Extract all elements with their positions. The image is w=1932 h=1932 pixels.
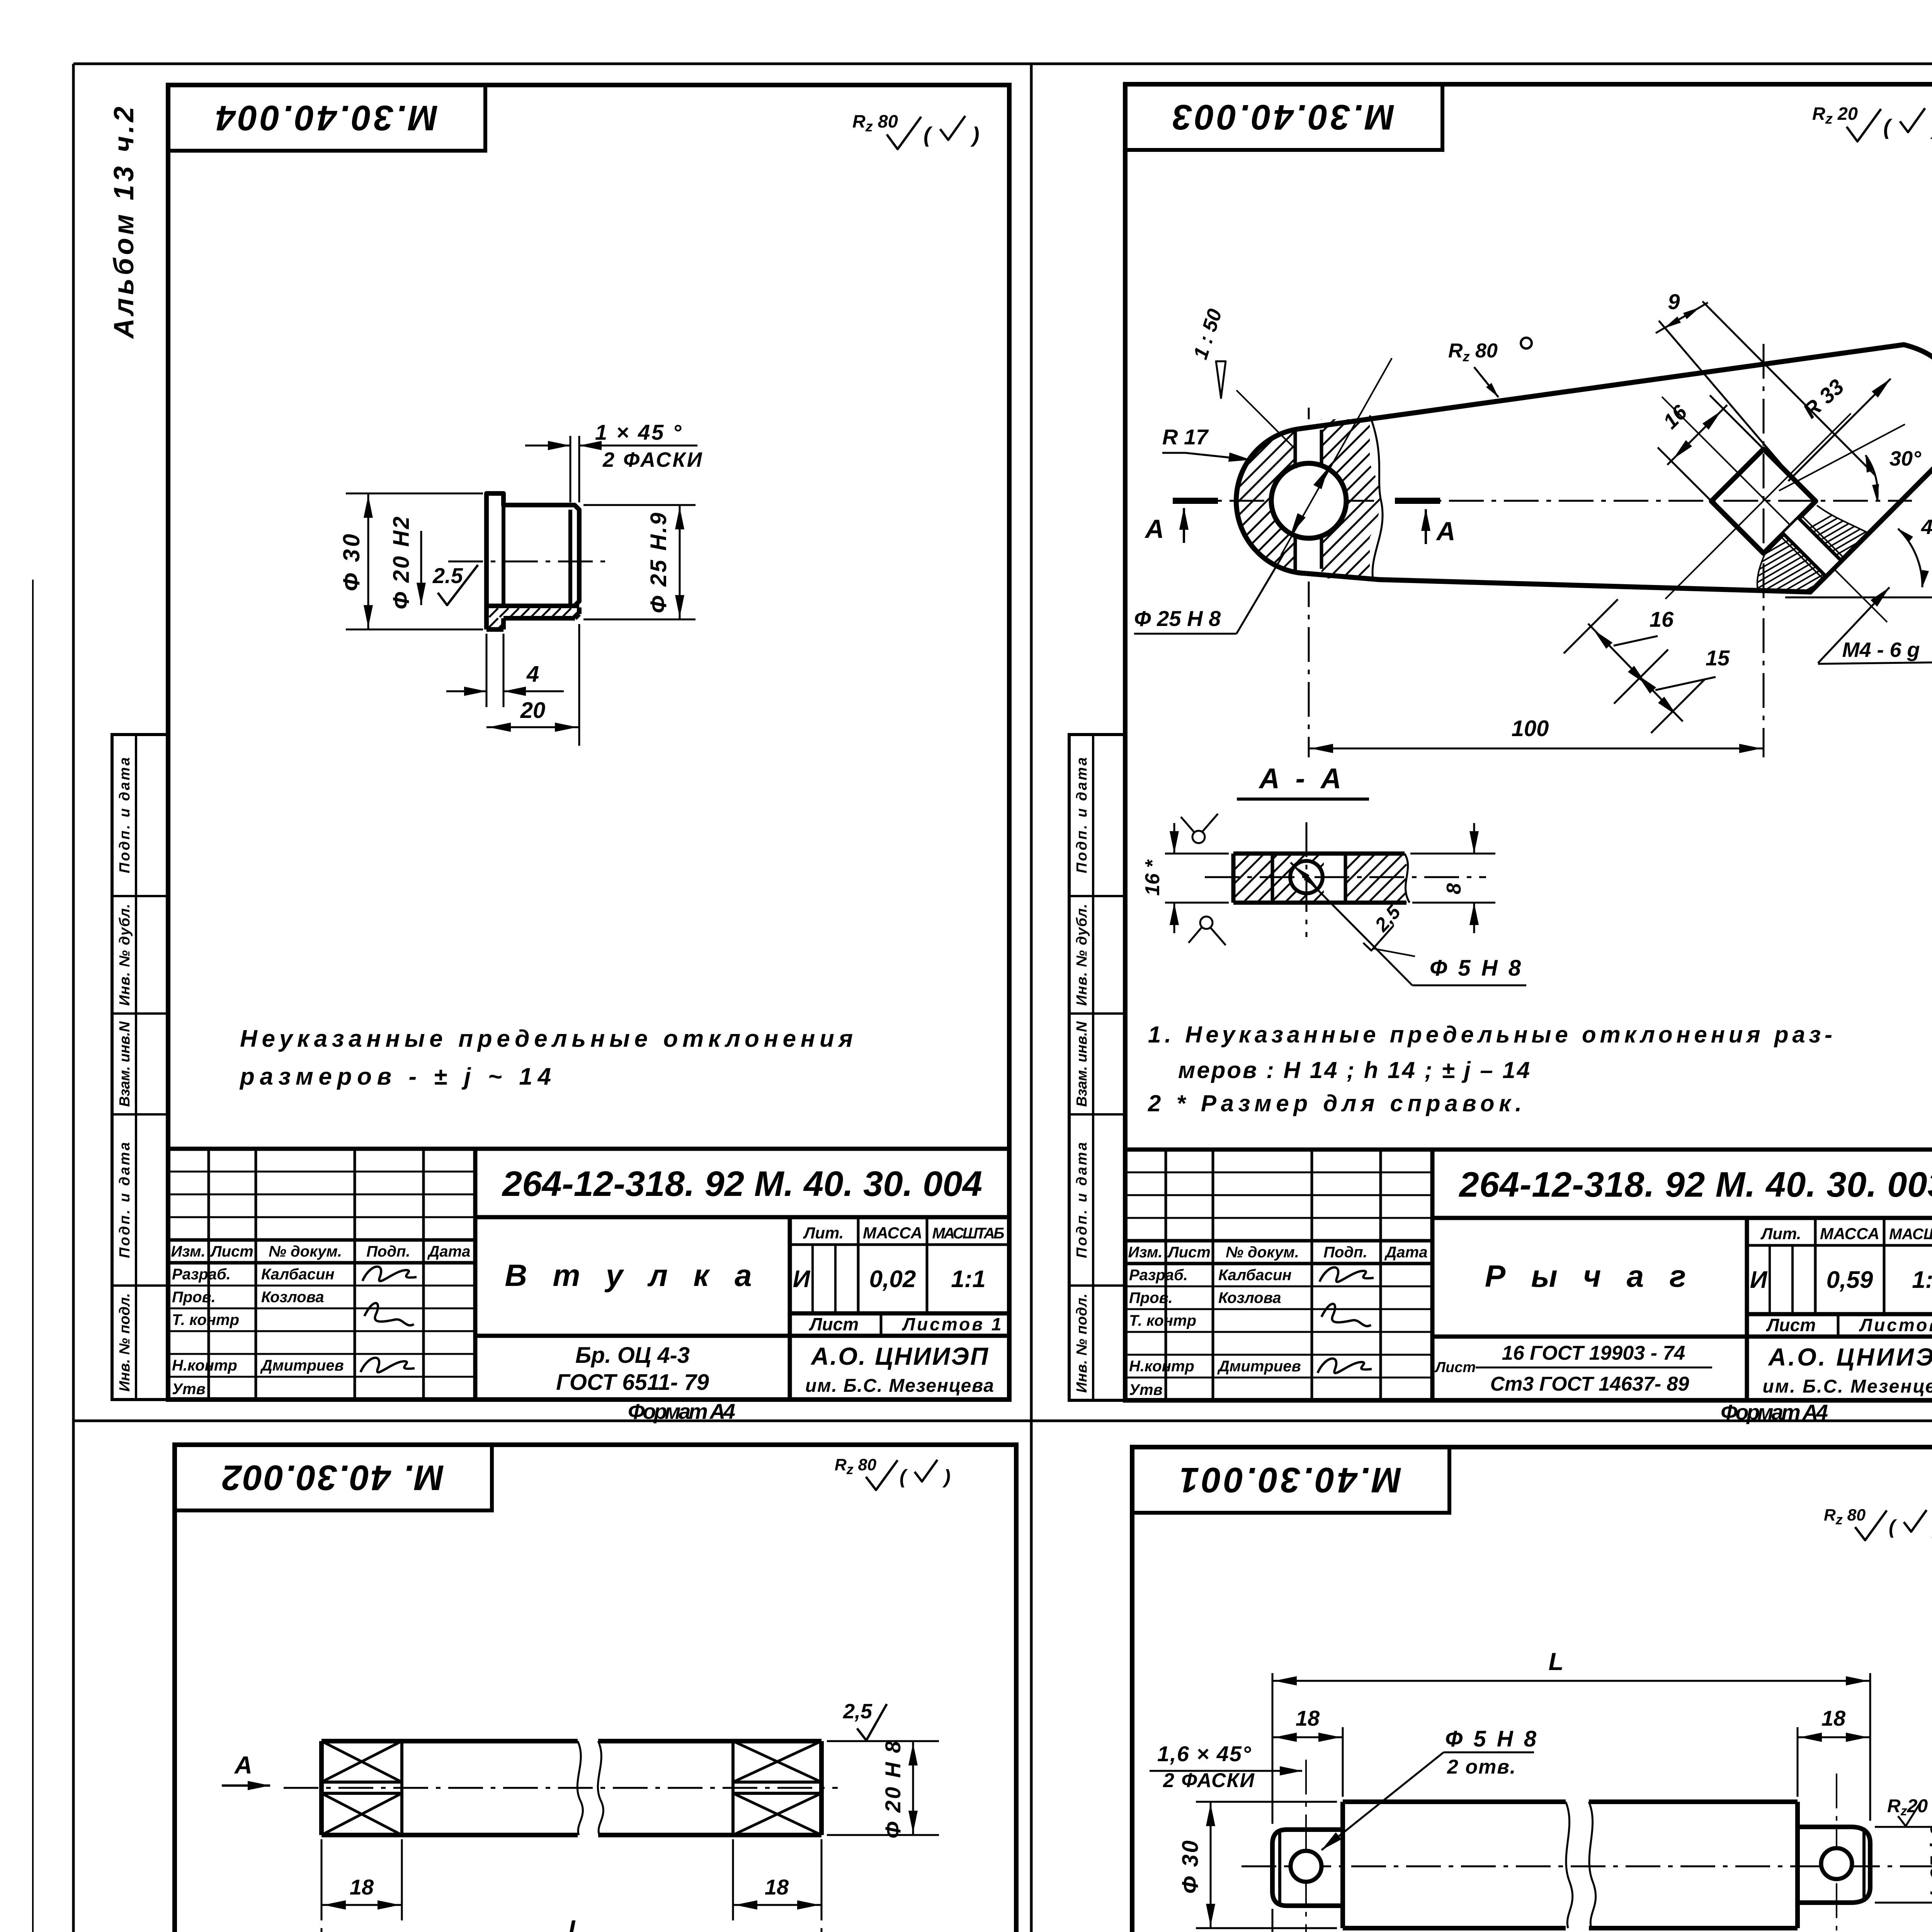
- svg-text:МАСШТАБ: МАСШТАБ: [1889, 1226, 1932, 1243]
- svg-text:2.5: 2.5: [432, 563, 463, 588]
- svg-text:2 * Размер для справок.: 2 * Размер для справок.: [1148, 1090, 1522, 1116]
- svg-text:20: 20: [520, 698, 546, 723]
- svg-text:Дата: Дата: [427, 1243, 471, 1260]
- svg-text:Козлова: Козлова: [261, 1289, 324, 1306]
- svg-text:Лит.: Лит.: [1760, 1225, 1801, 1243]
- svg-text:2 ФАСКИ: 2 ФАСКИ: [602, 448, 703, 471]
- svg-text:В т у л к а: В т у л к а: [505, 1258, 760, 1293]
- svg-text:Ф 25 Н 8: Ф 25 Н 8: [1134, 606, 1221, 631]
- svg-text:18: 18: [1296, 1706, 1320, 1730]
- svg-text:100: 100: [1512, 716, 1549, 741]
- svg-text:18: 18: [350, 1875, 374, 1899]
- svg-text:1:1: 1:1: [951, 1266, 986, 1293]
- svg-text:Инв. № дубл.: Инв. № дубл.: [117, 904, 133, 1006]
- svg-text:М. 40.30.002: М. 40.30.002: [222, 1458, 444, 1497]
- svg-text:Утв: Утв: [172, 1381, 206, 1398]
- svg-text:1 × 45 °: 1 × 45 °: [595, 420, 683, 444]
- svg-text:Лист: Лист: [1766, 1315, 1816, 1335]
- svg-text:Лист: Лист: [1167, 1244, 1211, 1261]
- svg-text:М4 - 6 g: М4 - 6 g: [1842, 638, 1920, 662]
- svg-text:Пров.: Пров.: [1129, 1289, 1173, 1306]
- svg-text:Н.контр: Н.контр: [1129, 1358, 1194, 1375]
- svg-text:Взам. инв.N: Взам. инв.N: [117, 1021, 133, 1107]
- svg-text:2,5: 2,5: [843, 1700, 872, 1723]
- svg-text:Ст3 ГОСТ 14637- 89: Ст3 ГОСТ 14637- 89: [1490, 1373, 1689, 1395]
- svg-text:9: 9: [1668, 289, 1680, 314]
- svg-text:18: 18: [1821, 1706, 1846, 1730]
- svg-text:А - А: А - А: [1259, 762, 1345, 794]
- svg-text:Р ы ч а г: Р ы ч а г: [1485, 1259, 1694, 1293]
- svg-text:Инв. № подл.: Инв. № подл.: [1074, 1294, 1090, 1393]
- svg-text:45°: 45°: [1921, 515, 1932, 539]
- svg-text:264-12-318. 92 М. 40. 30. 0: 264-12-318. 92 М. 40. 30. 003: [1459, 1165, 1932, 1204]
- svg-text:Формат А4: Формат А4: [1721, 1400, 1828, 1424]
- svg-text:Rz 80: Rz 80: [1448, 340, 1498, 364]
- svg-text:Ф 5 Н 8: Ф 5 Н 8: [1445, 1726, 1539, 1752]
- svg-text:А: А: [1435, 517, 1455, 546]
- svg-text:16 *: 16 *: [1141, 859, 1164, 896]
- svg-text:Изм.: Изм.: [1128, 1244, 1162, 1261]
- svg-text:А: А: [1144, 514, 1164, 544]
- svg-text:1. Неуказанные предельные о: 1. Неуказанные предельные отклонения раз…: [1148, 1022, 1832, 1048]
- svg-text:Утв: Утв: [1129, 1381, 1163, 1398]
- svg-text:им. Б.С. Мезенцева: им. Б.С. Мезенцева: [1763, 1376, 1932, 1397]
- svg-text:Ф 20 Н2: Ф 20 Н2: [389, 515, 414, 609]
- svg-text:2 отв.: 2 отв.: [1447, 1756, 1516, 1778]
- svg-text:Rz 80: Rz 80: [835, 1456, 876, 1477]
- svg-text:Подп.: Подп.: [366, 1243, 410, 1260]
- svg-text:Ф 20 Н 8: Ф 20 Н 8: [881, 1740, 905, 1838]
- svg-text:Rz 80: Rz 80: [1824, 1506, 1866, 1527]
- svg-text:L: L: [1548, 1648, 1563, 1675]
- svg-text:М.40.30.001: М.40.30.001: [1180, 1460, 1402, 1500]
- svg-text:Подп. и дата: Подп. и дата: [1074, 757, 1090, 873]
- svg-text:16: 16: [1650, 607, 1674, 631]
- svg-text:Подп.: Подп.: [1323, 1244, 1367, 1261]
- svg-text:Н.контр: Н.контр: [172, 1357, 237, 1374]
- svg-text:Инв. № дубл.: Инв. № дубл.: [1074, 904, 1090, 1006]
- svg-text:Разраб.: Разраб.: [172, 1266, 231, 1283]
- svg-text:Козлова: Козлова: [1218, 1289, 1281, 1306]
- svg-text:Rz 20: Rz 20: [1812, 104, 1858, 127]
- svg-text:0,02: 0,02: [869, 1266, 916, 1293]
- svg-text:Ф 30: Ф 30: [1178, 1839, 1203, 1894]
- svg-text:Лист: Лист: [809, 1314, 859, 1334]
- svg-text:0,59: 0,59: [1827, 1267, 1873, 1293]
- svg-text:Листов 1: Листов 1: [1859, 1315, 1932, 1335]
- svg-text:Подп. и дата: Подп. и дата: [1074, 1142, 1090, 1258]
- svg-text:И: И: [793, 1266, 811, 1293]
- svg-text:А.О. ЦНИИЭП: А.О. ЦНИИЭП: [1768, 1343, 1932, 1371]
- svg-text:15: 15: [1706, 646, 1730, 670]
- svg-text:МАСШТАБ: МАСШТАБ: [932, 1225, 1005, 1242]
- svg-text:Ф 25 h9: Ф 25 h9: [1927, 1824, 1932, 1902]
- svg-text:им. Б.С. Мезенцева: им. Б.С. Мезенцева: [805, 1376, 994, 1396]
- svg-text:И: И: [1750, 1267, 1768, 1293]
- svg-text:Т. контр: Т. контр: [1129, 1312, 1196, 1329]
- svg-text:16 ГОСТ 19903 - 74: 16 ГОСТ 19903 - 74: [1502, 1342, 1685, 1364]
- svg-text:Листов 1: Листов 1: [902, 1314, 1002, 1334]
- svg-text:Инв. № подл.: Инв. № подл.: [117, 1293, 133, 1392]
- svg-text:Пров.: Пров.: [172, 1289, 216, 1306]
- svg-text:Rz 80: Rz 80: [852, 111, 898, 135]
- svg-text:Разраб.: Разраб.: [1129, 1267, 1188, 1284]
- svg-text:Калбасин: Калбасин: [1218, 1267, 1292, 1284]
- svg-text:М.30.40.003: М.30.40.003: [1173, 97, 1395, 137]
- svg-text:8: 8: [1443, 883, 1465, 894]
- svg-text:М.30.40.004: М.30.40.004: [216, 98, 438, 138]
- svg-text:МАССА: МАССА: [1820, 1225, 1879, 1243]
- svg-text:Лист: Лист: [210, 1243, 253, 1260]
- svg-text:Калбасин: Калбасин: [261, 1266, 335, 1283]
- svg-text:18: 18: [765, 1875, 789, 1899]
- svg-text:Дмитриев: Дмитриев: [260, 1357, 344, 1374]
- svg-text:Изм.: Изм.: [171, 1243, 205, 1260]
- svg-text:Взам. инв.N: Взам. инв.N: [1074, 1021, 1090, 1107]
- svg-text:Бр. ОЦ 4-3: Бр. ОЦ 4-3: [575, 1343, 690, 1368]
- svg-text:264-12-318. 92 М. 40. 30. 0: 264-12-318. 92 М. 40. 30. 004: [502, 1164, 982, 1204]
- svg-text:1,6 × 45°: 1,6 × 45°: [1157, 1742, 1252, 1766]
- svg-text:R 17: R 17: [1162, 425, 1209, 449]
- svg-text:меров : Н 14 ; h 14 ; ± j: меров : Н 14 ; h 14 ; ± j – 14: [1178, 1057, 1530, 1083]
- svg-text:№ докум.: № докум.: [1226, 1244, 1299, 1261]
- svg-text:№ докум.: № докум.: [269, 1243, 342, 1260]
- svg-text:Формат А4: Формат А4: [628, 1399, 735, 1423]
- svg-text:Ф 30: Ф 30: [338, 532, 364, 591]
- svg-text:МАССА: МАССА: [863, 1224, 922, 1242]
- svg-text:Лист: Лист: [1434, 1359, 1476, 1376]
- svg-text:Rz20: Rz20: [1887, 1796, 1928, 1818]
- svg-text:А: А: [234, 1751, 252, 1779]
- svg-text:30°: 30°: [1889, 447, 1921, 470]
- svg-text:2 ФАСКИ: 2 ФАСКИ: [1163, 1769, 1255, 1792]
- svg-text:Дата: Дата: [1384, 1244, 1428, 1261]
- svg-text:20: 20: [1929, 549, 1932, 573]
- svg-text:Подп. и дата: Подп. и дата: [117, 1142, 133, 1258]
- svg-text:Дмитриев: Дмитриев: [1217, 1358, 1301, 1375]
- svg-text:Подп. и дата: Подп. и дата: [117, 757, 133, 873]
- svg-text:4: 4: [526, 662, 539, 687]
- svg-text:Ф 5 Н 8: Ф 5 Н 8: [1430, 956, 1523, 981]
- svg-text:Ф 25 Н.9: Ф 25 Н.9: [646, 511, 671, 613]
- svg-text:Лит.: Лит.: [803, 1224, 844, 1242]
- svg-text:ГОСТ 6511- 79: ГОСТ 6511- 79: [556, 1370, 709, 1395]
- svg-text:L: L: [568, 1915, 583, 1932]
- svg-text:1:1: 1:1: [1912, 1267, 1932, 1293]
- svg-text:Т. контр: Т. контр: [172, 1311, 239, 1328]
- svg-text:Альбом 13 ч.2: Альбом 13 ч.2: [109, 107, 139, 339]
